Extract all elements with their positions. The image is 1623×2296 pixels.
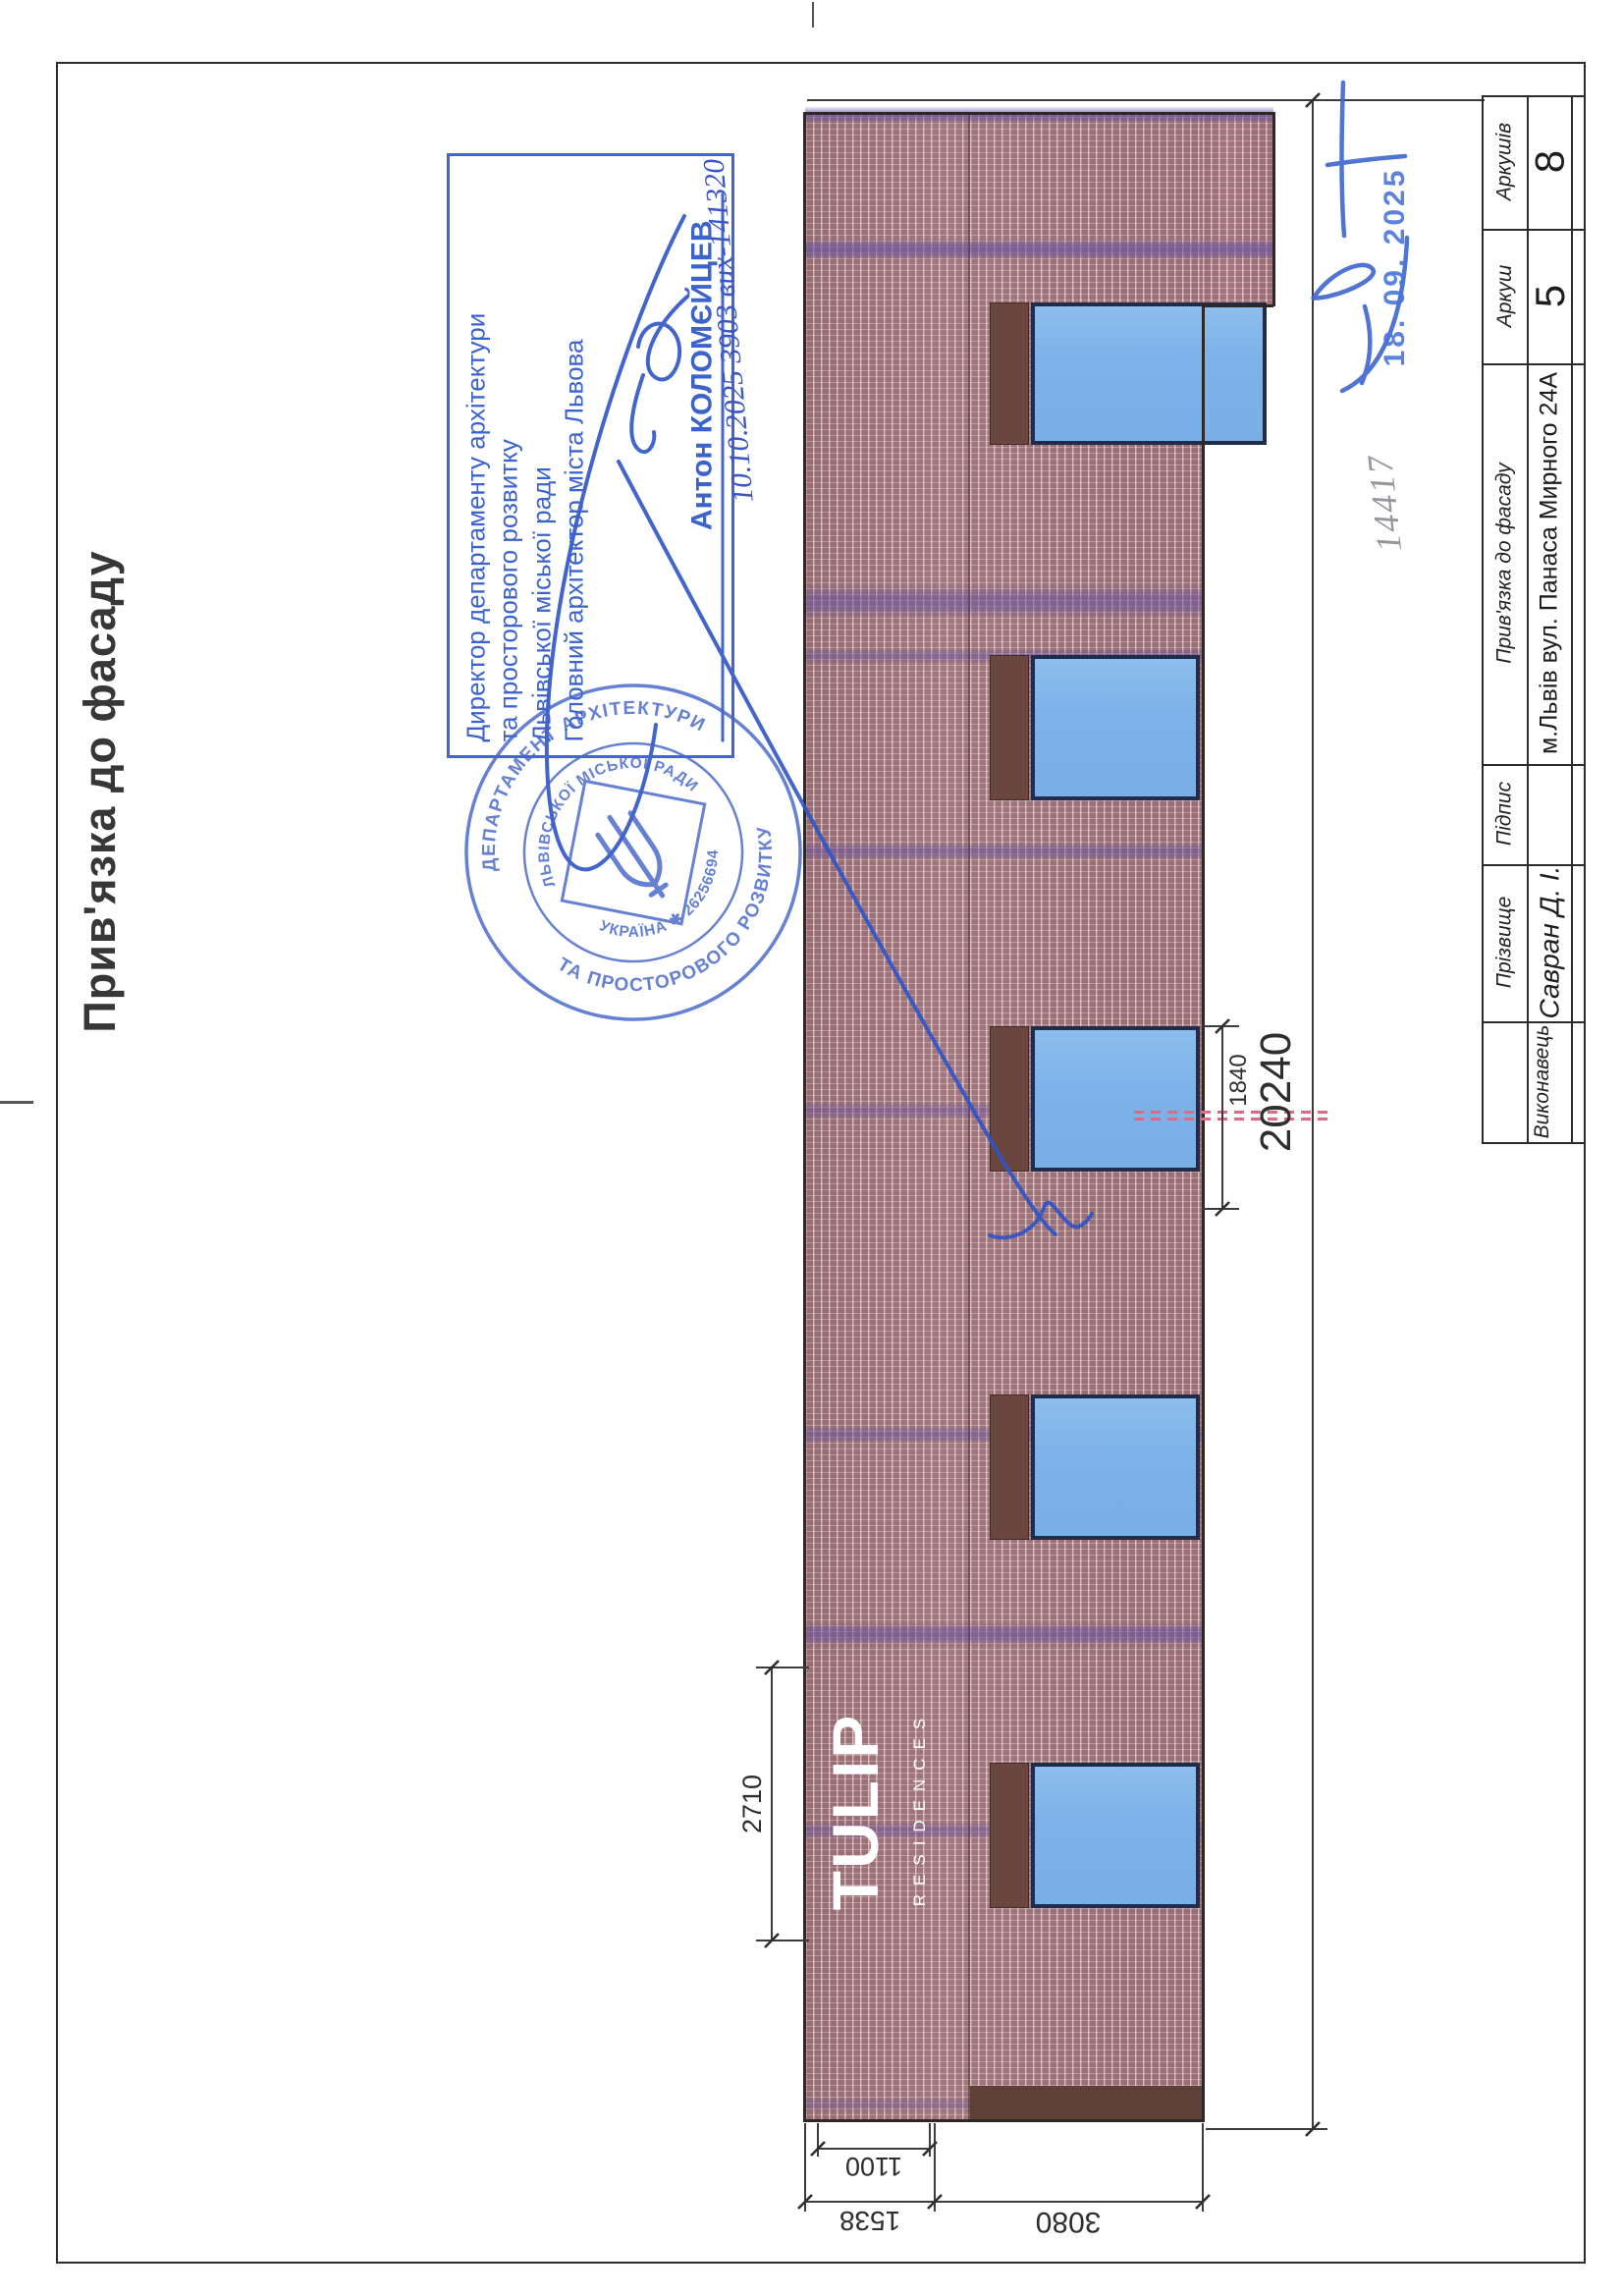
- window-sill: [990, 1394, 1029, 1540]
- facade-edge: [1272, 112, 1275, 306]
- tulip-logo: TULIP: [820, 1669, 891, 1954]
- titleblock-sheet-label: Аркуш: [1482, 229, 1528, 363]
- dimension-3080-text: 3080: [1036, 2205, 1102, 2238]
- facade-joint-line: [968, 113, 970, 2121]
- stamp-line-4: Головний архітектор міста Львова: [558, 163, 590, 742]
- facade-window: [1031, 1026, 1200, 1172]
- titleblock-line: [1482, 1142, 1586, 1144]
- frame-bottom: [56, 2262, 1586, 2264]
- purple-band: [805, 1622, 1203, 1646]
- window-sill: [990, 655, 1029, 800]
- tulip-logo-subtitle-text: RESIDENCES: [910, 1710, 930, 1907]
- scanned-sheet: Прив'язка до фасаду TULIP RESIDENCES: [0, 0, 1623, 2296]
- titleblock-surname-value: Савран Д. І.: [1528, 864, 1572, 1021]
- dimension-1840: 1840: [1226, 1021, 1252, 1139]
- page-title: Прив'язка до фасаду: [69, 566, 132, 1017]
- facade-window: [1031, 1394, 1200, 1540]
- facade-edge: [1203, 304, 1273, 307]
- frame-left: [56, 62, 58, 2264]
- titleblock-subject-label: Прив'язка до фасаду: [1482, 363, 1528, 764]
- handwritten-note-text: 14417: [1359, 452, 1410, 554]
- titleblock-subject-value: м.Львів вул. Панаса Мирного 24А: [1528, 363, 1572, 764]
- purple-band: [805, 843, 1203, 860]
- titleblock-signature-label: Підпис: [1482, 764, 1528, 864]
- dimension-1538: 1538: [811, 2206, 929, 2235]
- window-sill: [990, 1026, 1029, 1172]
- dimension-20240-text: 20240: [1252, 1032, 1301, 1152]
- dimension-2710: 2710: [737, 1730, 767, 1878]
- dimension-1538-text: 1538: [839, 2205, 900, 2236]
- tulip-logo-subtitle: RESIDENCES: [909, 1685, 931, 1931]
- fold-mark-left: [0, 1101, 33, 1104]
- stamp-line-3: Львівської міської ради: [525, 163, 558, 742]
- dimension-20240: 20240: [1255, 1004, 1298, 1180]
- page-title-text: Прив'язка до фасаду: [75, 550, 126, 1032]
- stamp-line-1: Директор департаменту архітектури: [460, 163, 493, 742]
- dimension-3080: 3080: [1009, 2207, 1127, 2236]
- dimension-1100-text: 1100: [845, 2152, 902, 2182]
- facade-edge: [803, 112, 1275, 115]
- facade-edge: [803, 112, 806, 2122]
- handwritten-note: 14417: [1358, 437, 1410, 568]
- facade-window: [1031, 655, 1200, 800]
- facade-edge: [1202, 304, 1205, 2121]
- tulip-logo-text: TULIP: [818, 1714, 893, 1911]
- titleblock-sheets-value: 8: [1528, 95, 1572, 229]
- titleblock-sheets-label: Аркушів: [1482, 95, 1528, 229]
- facade-window: [1031, 302, 1267, 445]
- trident-icon: [593, 806, 678, 906]
- fold-mark-top: [812, 2, 814, 27]
- titleblock-sheet-value: 5: [1528, 229, 1572, 363]
- titleblock-surname-label: Прізвище: [1482, 864, 1528, 1021]
- dimension-2710-text: 2710: [737, 1775, 768, 1833]
- stamp-line-2: та просторового розвитку: [493, 163, 525, 742]
- window-sill: [990, 1763, 1029, 1908]
- frame-top: [56, 62, 1586, 64]
- facade-base-band: [970, 2086, 1203, 2121]
- facade-edge: [803, 2119, 1205, 2122]
- window-sill: [990, 302, 1029, 445]
- dimension-1840-text: 1840: [1225, 1054, 1253, 1106]
- titleblock-executor-label: Виконавець: [1512, 1021, 1572, 1142]
- purple-band: [805, 585, 1203, 619]
- facade-window: [1031, 1763, 1200, 1908]
- date-stamp: 18. 09. 2025: [1380, 154, 1411, 380]
- facade-top-block: [1203, 113, 1273, 306]
- purple-band: [805, 239, 1273, 260]
- date-stamp-text: 18. 09. 2025: [1379, 168, 1412, 367]
- frame-right: [1584, 62, 1586, 2264]
- purple-band: [805, 106, 1273, 124]
- dimension-1100: 1100: [815, 2152, 933, 2181]
